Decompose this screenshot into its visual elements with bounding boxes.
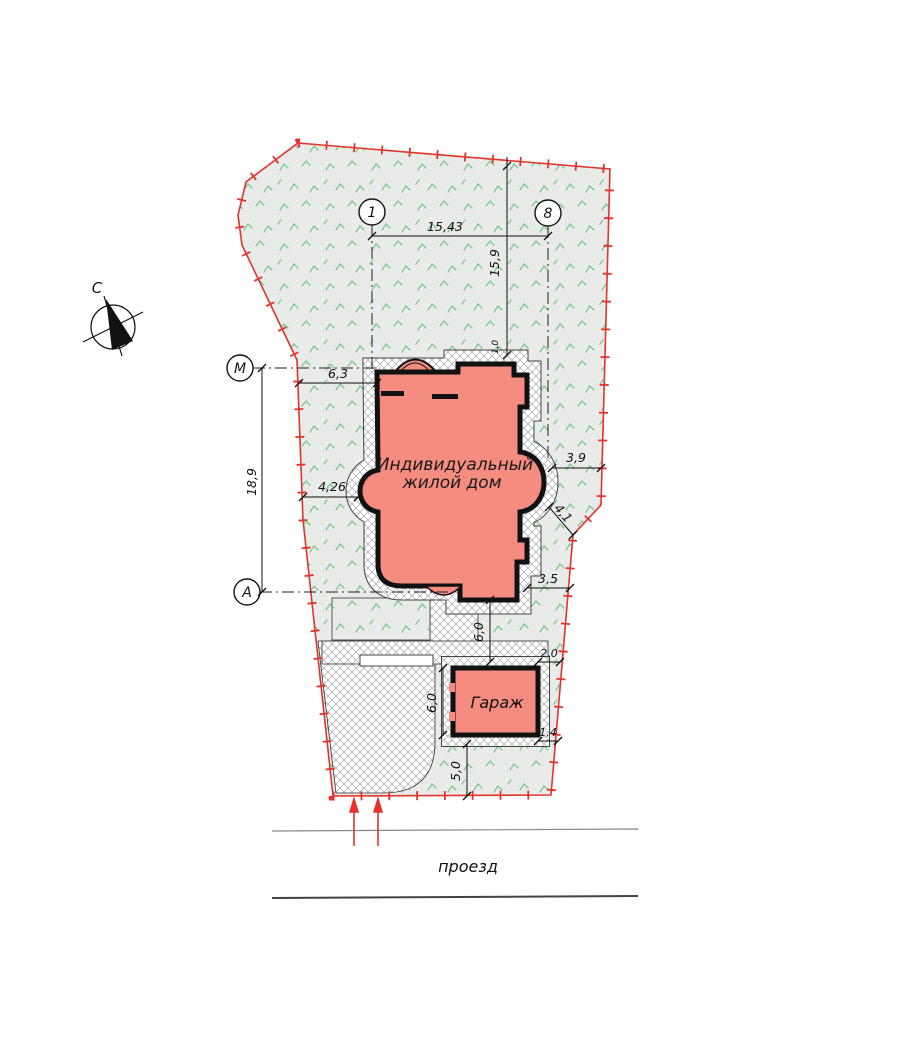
axis-label-8: 8 bbox=[544, 206, 553, 222]
entrance-arrows bbox=[350, 799, 382, 846]
house-interior-wall-2 bbox=[432, 394, 458, 399]
site-plan-drawing: Индивидуальный жилой дом Гараж 1 8 М А bbox=[0, 0, 905, 1055]
garage-label: Гараж bbox=[470, 693, 524, 712]
road: проезд bbox=[272, 799, 638, 898]
dim-top-wall-offset: 1,0 bbox=[491, 340, 501, 355]
dim-south-offset: 5,0 bbox=[448, 761, 463, 781]
driveway-step-bar bbox=[360, 655, 433, 666]
dim-north-offset: 15,9 bbox=[487, 249, 502, 277]
grass-island-texture bbox=[332, 598, 430, 640]
dim-house-to-garage: 6,0 bbox=[471, 622, 486, 642]
garage: Гараж bbox=[449, 668, 538, 735]
road-label: проезд bbox=[438, 857, 498, 876]
axis-label-a: А bbox=[241, 585, 252, 601]
axis-label-m: М bbox=[234, 361, 246, 377]
house-interior-wall-1 bbox=[381, 391, 404, 396]
axis-label-1: 1 bbox=[368, 205, 377, 221]
road-line-bottom bbox=[272, 896, 638, 898]
house: Индивидуальный жилой дом bbox=[360, 360, 544, 601]
dim-west-bay-offset: 4,26 bbox=[318, 479, 346, 494]
north-arrow: С bbox=[83, 279, 143, 356]
dim-southeast-offset: 3,5 bbox=[538, 571, 558, 586]
house-label-line2: жилой дом bbox=[401, 473, 501, 493]
dim-garage-east-bottom: 1,4 bbox=[539, 726, 557, 739]
north-label: С bbox=[92, 279, 103, 297]
dim-garage-east-top: 2,0 bbox=[540, 647, 558, 660]
dim-axis-height: 18,9 bbox=[244, 468, 259, 496]
north-arrow-needle bbox=[106, 299, 133, 350]
site-plan-canvas: Индивидуальный жилой дом Гараж 1 8 М А bbox=[0, 0, 905, 1055]
garage-door-notch-1 bbox=[449, 683, 455, 692]
dim-garage-side: 6,0 bbox=[424, 693, 439, 713]
entrance-arrow-left-head bbox=[350, 799, 358, 812]
dim-east-bay-offset: 3,9 bbox=[566, 450, 586, 465]
dim-axis-width: 15,43 bbox=[427, 219, 463, 234]
house-label-line1: Индивидуальный bbox=[377, 455, 533, 475]
road-line-top bbox=[272, 829, 638, 831]
garage-door-notch-2 bbox=[449, 712, 455, 721]
entrance-arrow-right-head bbox=[374, 799, 382, 812]
dim-west-offset: 6,3 bbox=[328, 366, 348, 381]
